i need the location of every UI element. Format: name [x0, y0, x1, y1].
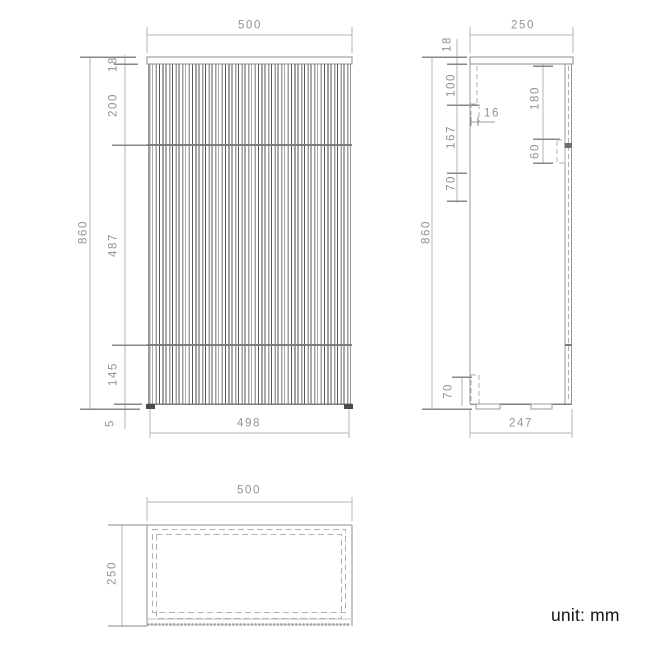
dim-front-seg-upper: 200 [108, 93, 120, 117]
technical-drawing-canvas: 500 18 200 487 145 5 860 498 250 18 100 … [0, 0, 650, 650]
plan-hidden-carcass [153, 530, 346, 619]
dim-front-feet-gap: 5 [105, 419, 117, 427]
side-top-panel [470, 57, 573, 64]
dim-side-handle-offset: 180 [530, 86, 542, 110]
side-door-catch [565, 143, 573, 148]
dim-front-width-bottom: 498 [237, 418, 261, 430]
dim-side-depth-top: 250 [511, 20, 535, 32]
dim-side-seg-c: 70 [446, 175, 458, 191]
front-carcass-edges [149, 64, 351, 404]
dim-plan-width: 500 [237, 485, 261, 497]
front-top-panel [147, 57, 352, 64]
dim-side-depth-bottom: 247 [509, 418, 533, 430]
dim-side-height: 860 [421, 220, 433, 244]
front-dimension-lines [90, 27, 352, 438]
dim-front-seg-lower: 145 [108, 362, 120, 386]
dim-side-seg-b: 167 [446, 125, 458, 149]
plan-view [108, 497, 352, 626]
dim-front-seg-middle: 487 [108, 233, 120, 257]
dim-side-foot-height: 70 [443, 383, 455, 399]
dim-front-top-thickness: 18 [108, 56, 120, 72]
front-elevation-view [80, 27, 353, 438]
front-shelf-lines [147, 145, 352, 404]
dim-side-panel-thickness: 16 [484, 108, 500, 120]
plan-outline [147, 525, 352, 626]
dim-front-height: 860 [78, 220, 90, 244]
unit-note: unit: mm [551, 605, 620, 626]
dim-plan-depth: 250 [107, 561, 119, 585]
dim-side-seg-a: 100 [446, 73, 458, 97]
dim-side-top-thickness: 18 [442, 36, 454, 52]
drawing-linework [0, 0, 650, 650]
dim-side-handle-height: 60 [530, 143, 542, 159]
dim-front-width-top: 500 [238, 20, 262, 32]
